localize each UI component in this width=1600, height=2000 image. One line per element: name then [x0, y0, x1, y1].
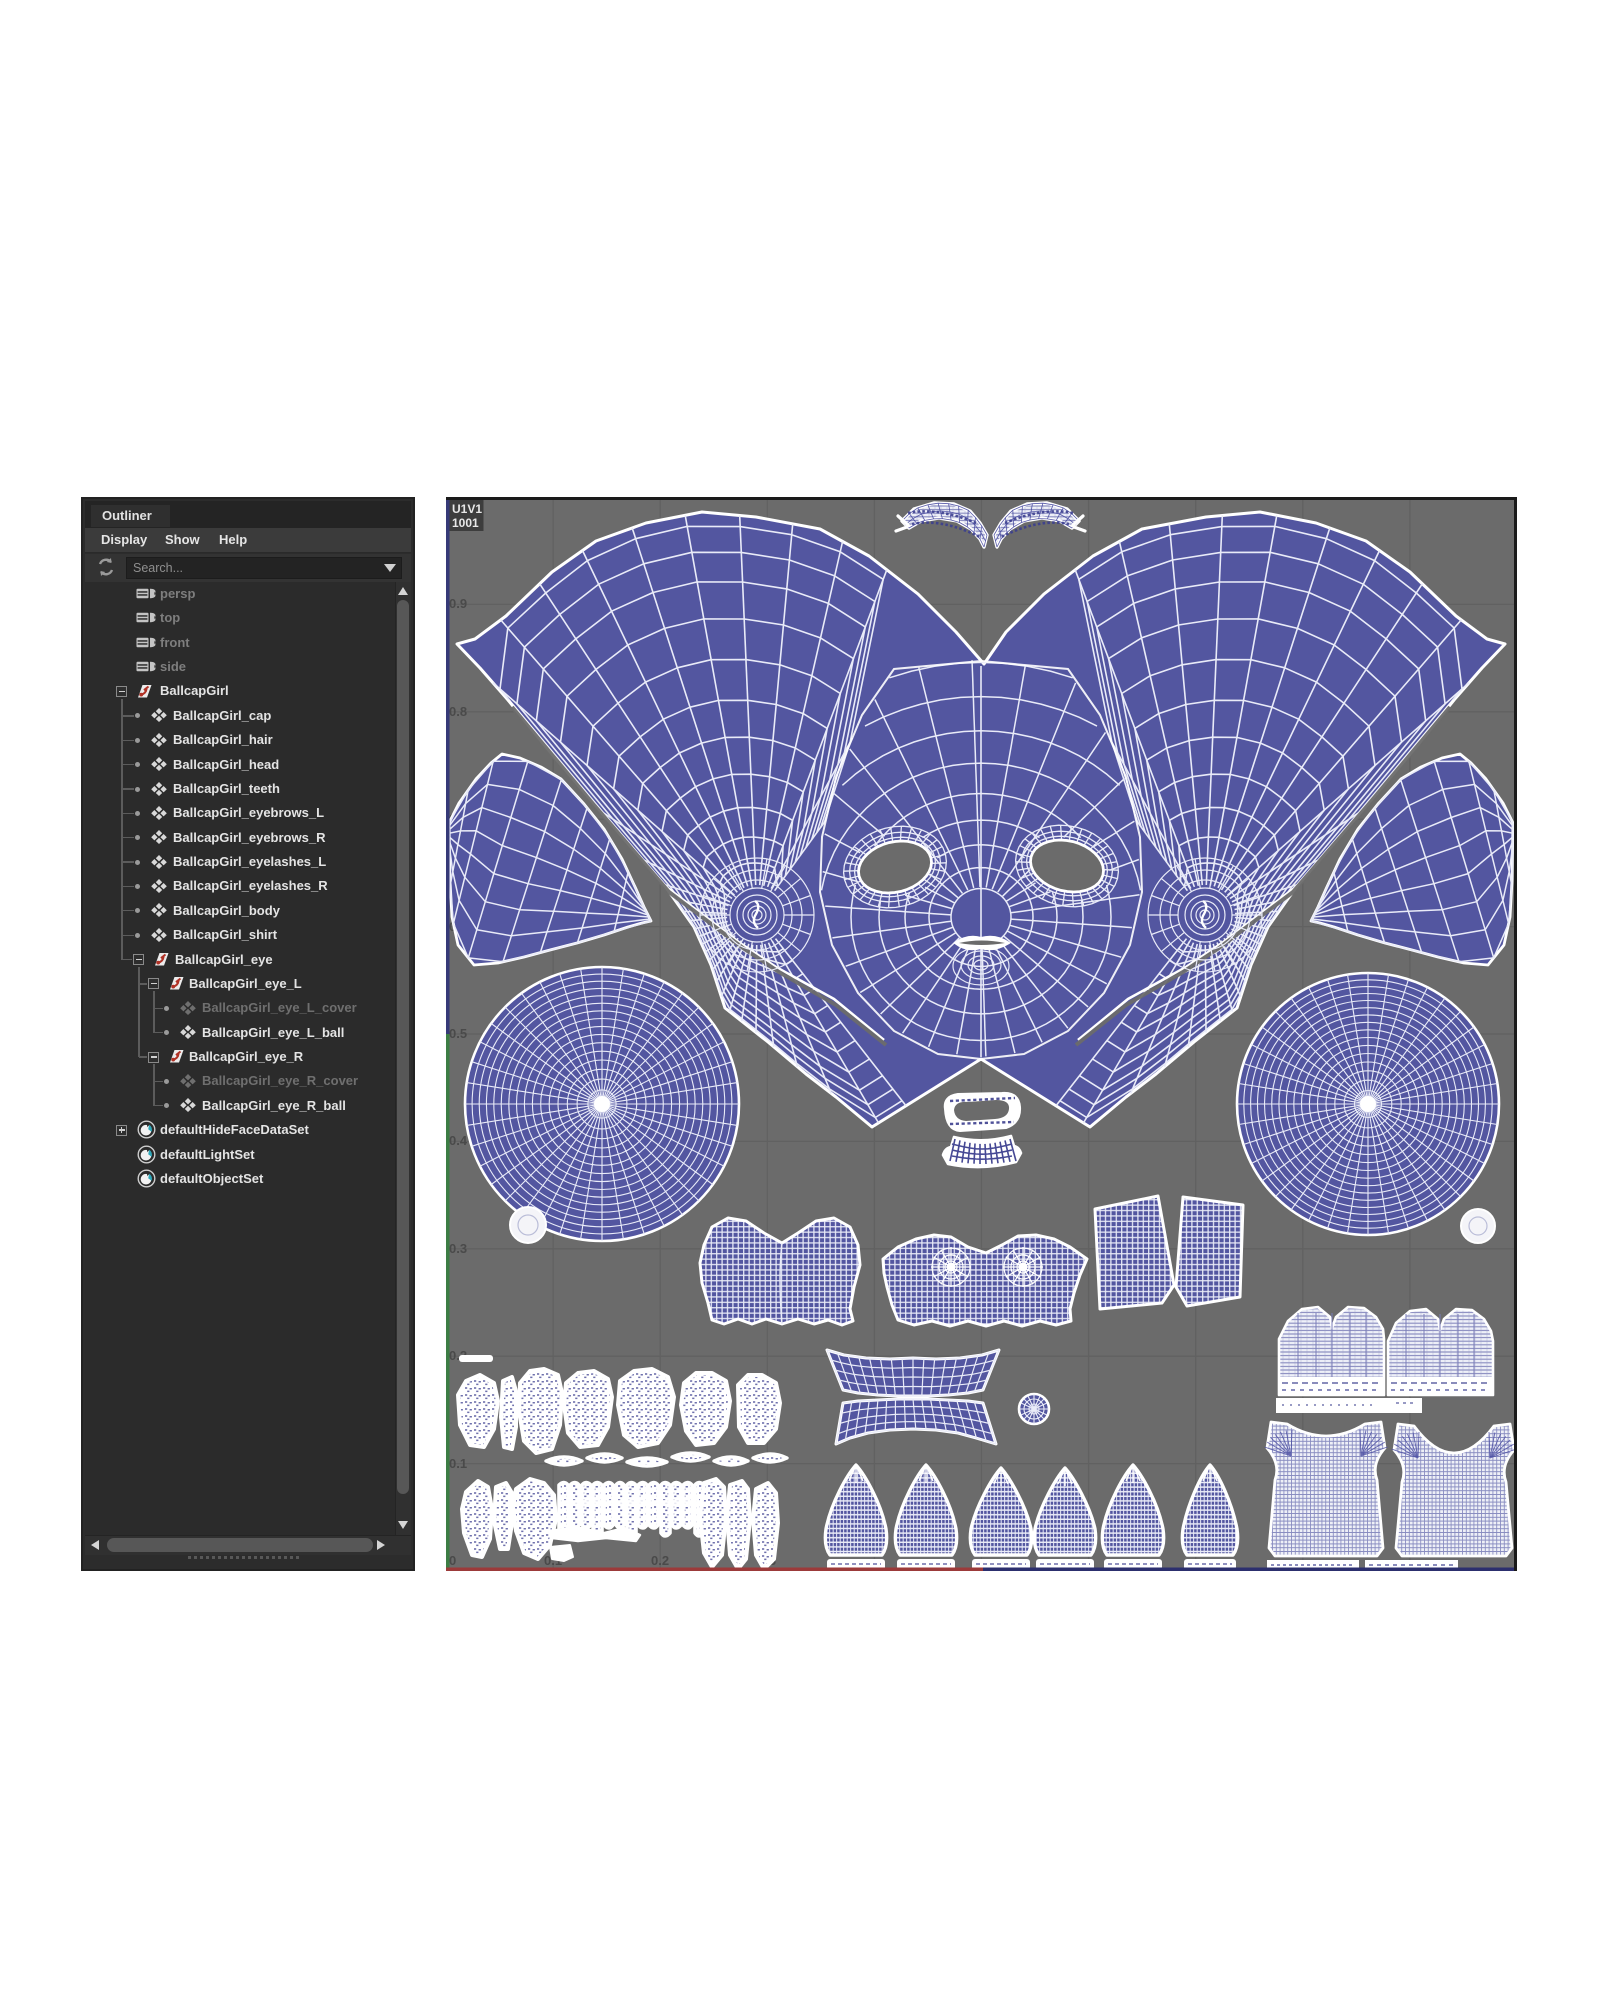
- svg-text:0.8: 0.8: [449, 704, 467, 719]
- svg-text:0.9: 0.9: [449, 596, 467, 611]
- svg-text:0.5: 0.5: [449, 1026, 467, 1041]
- svg-text:1001: 1001: [452, 516, 479, 530]
- svg-text:0.1: 0.1: [449, 1456, 467, 1471]
- svg-text:0.3: 0.3: [449, 1241, 467, 1256]
- svg-text:0: 0: [449, 1553, 456, 1568]
- svg-text:0.4: 0.4: [449, 1133, 468, 1148]
- svg-text:0.2: 0.2: [651, 1553, 669, 1568]
- svg-text:U1V1: U1V1: [452, 502, 482, 516]
